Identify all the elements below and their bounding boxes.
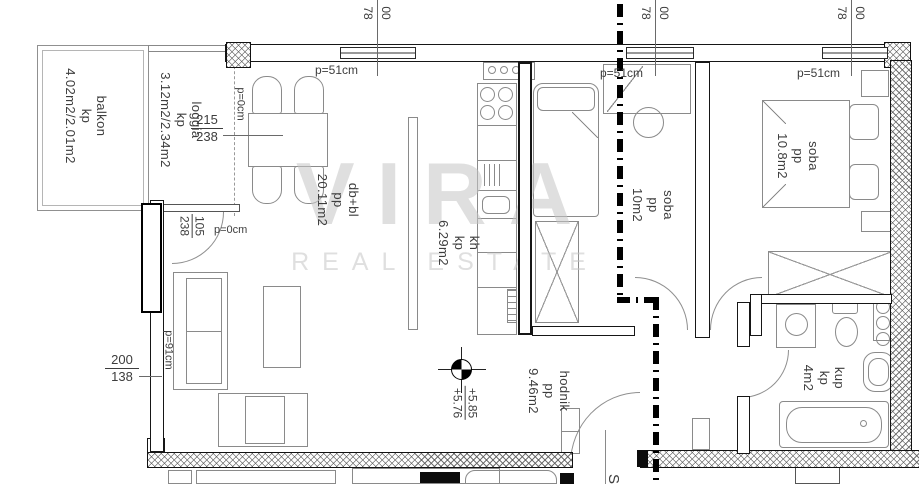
room-label-bathroom: kup kp 4m2 xyxy=(801,365,847,392)
counter-divider xyxy=(477,252,517,253)
room-floor-code: pp xyxy=(645,188,660,222)
dim-left-window-den: 138 xyxy=(105,369,139,385)
counter-divider xyxy=(477,160,517,161)
dishrack-line xyxy=(499,164,500,186)
lower-unit-tub xyxy=(465,470,557,484)
bathroom-left-wall-upper xyxy=(737,302,750,347)
room-name: soba xyxy=(806,133,821,179)
unit-boundary-vertical-lower xyxy=(653,297,659,484)
room-area: 4m2 xyxy=(801,365,816,392)
dim-line-window-1 xyxy=(377,0,378,76)
room-floor-code: pp xyxy=(541,368,556,414)
bathtub-drain xyxy=(860,420,867,427)
parapet-label-loggia-h: p=0cm xyxy=(214,224,247,236)
room-name: kup xyxy=(832,365,847,392)
room-label-living-dining: db+bl pp 20.11m2 xyxy=(315,174,361,226)
kitchen-wall xyxy=(518,62,532,335)
dim-loggia-window-leader xyxy=(223,135,283,136)
lower-unit-furniture xyxy=(196,470,336,484)
room-label-bedroom-small: soba pp 10m2 xyxy=(630,188,676,222)
dining-chair xyxy=(252,166,282,204)
bottom-wall-left xyxy=(147,452,573,468)
room-name: kh xyxy=(467,220,482,266)
dim-window-top-3-den: 78 xyxy=(835,6,849,19)
stove-burner xyxy=(480,105,495,120)
shaft-notch xyxy=(795,466,840,484)
bed-large-pillow xyxy=(849,164,879,200)
dim-left-window: 200 138 xyxy=(105,352,139,386)
boiler-dial xyxy=(876,332,890,346)
dim-window-top-1-num: 00 xyxy=(379,6,393,19)
counter-divider xyxy=(477,218,517,219)
washbasin-inner xyxy=(868,358,889,386)
toilet-bowl xyxy=(835,317,858,347)
bathroom-top-wall xyxy=(750,294,892,304)
top-exterior-wall xyxy=(225,44,910,62)
level-values: +5.85 +5.76 xyxy=(450,386,479,420)
dim-left-window-leader xyxy=(139,376,162,377)
nightstand xyxy=(861,70,889,97)
dim-line-window-3 xyxy=(851,0,852,76)
room-area: 6.29m2 xyxy=(436,220,451,266)
dishrack-line xyxy=(489,164,490,186)
entrance-jamb-left xyxy=(560,473,574,484)
room-name: loggia xyxy=(189,72,204,168)
room-floor-code: kp xyxy=(451,220,466,266)
dining-chair xyxy=(294,76,324,114)
counter-divider xyxy=(477,287,517,288)
stair-label: S xyxy=(604,474,622,484)
window-top-2 xyxy=(626,47,694,59)
dim-line-window-2 xyxy=(655,0,656,76)
loggia-top-rail xyxy=(148,45,228,52)
hob-knob xyxy=(500,66,508,74)
unit-boundary-vertical-upper xyxy=(617,4,623,300)
level-marker xyxy=(451,359,472,380)
parapet-label-3: p=51cm xyxy=(797,66,840,80)
room-name: db+bl xyxy=(346,174,361,226)
level-upper: +5.85 xyxy=(465,386,480,420)
parapet-label-1: p=51cm xyxy=(315,63,358,77)
dim-loggia-door-den: 238 xyxy=(177,214,191,238)
room-area: 20.11m2 xyxy=(315,174,330,226)
desk-chair xyxy=(633,107,664,138)
bathtub-inner xyxy=(786,407,882,443)
washing-machine-drum xyxy=(785,313,808,336)
bathroom-left-wall-lower xyxy=(737,396,750,454)
bed-large-corner xyxy=(762,184,786,208)
bedroom-small-door-arc xyxy=(635,277,688,330)
right-exterior-wall xyxy=(890,60,912,457)
dishrack-line xyxy=(484,164,485,186)
room-label-hallway: hodnik pp 9.46m2 xyxy=(526,368,572,414)
room-name: soba xyxy=(661,188,676,222)
stove-burner xyxy=(498,87,513,102)
lower-unit-furniture xyxy=(168,470,192,484)
parapet-label-loggia-v: p=0cm xyxy=(234,87,247,120)
kitchen-shelf-ladder xyxy=(507,289,517,323)
room-label-kitchen: kh kp 6.29m2 xyxy=(436,220,482,266)
room-area: 9.46m2 xyxy=(526,368,541,414)
hob-knob xyxy=(488,66,496,74)
entrance-door-arc xyxy=(570,392,640,464)
shelf-partition xyxy=(408,117,418,330)
wall-pier-left xyxy=(226,42,251,68)
room-floor-code: kp xyxy=(173,72,188,168)
level-lower: +5.76 xyxy=(450,386,464,420)
stove-burner xyxy=(480,87,495,102)
parapet-label-left-window: p=91cm xyxy=(162,330,175,369)
dim-loggia-door: 105 238 xyxy=(177,214,206,238)
dining-table xyxy=(248,113,328,167)
boiler-dial xyxy=(876,316,890,330)
room-floor-code: pp xyxy=(330,174,345,226)
room-floor-code: kp xyxy=(816,365,831,392)
room-name: hodnik xyxy=(557,368,572,414)
bedroom-divider-wall xyxy=(695,62,710,338)
counter-divider xyxy=(477,125,517,126)
bottom-wall-right xyxy=(640,450,919,468)
lower-unit-stove xyxy=(420,472,460,483)
counter-divider xyxy=(477,190,517,191)
dining-chair xyxy=(252,76,282,114)
room-floor-code: pp xyxy=(790,133,805,179)
parapet-label-2: p=51cm xyxy=(600,66,643,80)
stove-burner xyxy=(498,105,513,120)
floor-plan: VIRA REAL ESTATE xyxy=(0,0,919,484)
armchair-seat xyxy=(245,396,285,444)
dim-window-top-3-num: 00 xyxy=(853,6,867,19)
dim-window-top-1-den: 78 xyxy=(361,6,375,19)
dim-window-top-2-den: 78 xyxy=(639,6,653,19)
room-area: 3.12m2/2.34m2 xyxy=(158,72,173,168)
room-label-bedroom-large: soba pp 10.8m2 xyxy=(775,133,821,179)
room-label-loggia: loggia kp 3.12m2/2.34m2 xyxy=(158,72,204,168)
kitchen-sink xyxy=(482,196,510,214)
window-top-3 xyxy=(822,47,888,59)
sofa-cushion-line xyxy=(186,331,222,332)
bed-large-corner xyxy=(762,100,786,124)
room-area: 4.02m2/2.01m2 xyxy=(63,68,78,164)
dim-left-window-num: 200 xyxy=(105,352,139,369)
nightstand xyxy=(861,211,891,232)
dim-loggia-door-num: 105 xyxy=(192,214,207,238)
radiator xyxy=(692,418,710,450)
coffee-table xyxy=(263,286,301,368)
dim-window-top-2-num: 00 xyxy=(657,6,671,19)
wardrobe-large xyxy=(768,251,892,298)
window-top-1 xyxy=(340,47,416,59)
bed-small-fold xyxy=(572,112,598,138)
left-window xyxy=(141,203,162,313)
room-floor-code: kp xyxy=(78,68,93,164)
bed-large-pillow xyxy=(849,104,879,140)
loggia-open-edge xyxy=(234,56,235,216)
bed-small-pillow xyxy=(537,87,595,111)
room-name: balkon xyxy=(94,68,109,164)
dishrack-line xyxy=(494,164,495,186)
room-area: 10.8m2 xyxy=(775,133,790,179)
bathroom-door-arc xyxy=(741,350,789,398)
room-label-balkon: balkon kp 4.02m2/2.01m2 xyxy=(63,68,109,164)
hall-top-wall xyxy=(532,326,635,336)
room-area: 10m2 xyxy=(630,188,645,222)
bathroom-wall-jog xyxy=(750,294,762,336)
entrance-jamb-right xyxy=(637,450,648,467)
wardrobe-small xyxy=(535,221,579,323)
